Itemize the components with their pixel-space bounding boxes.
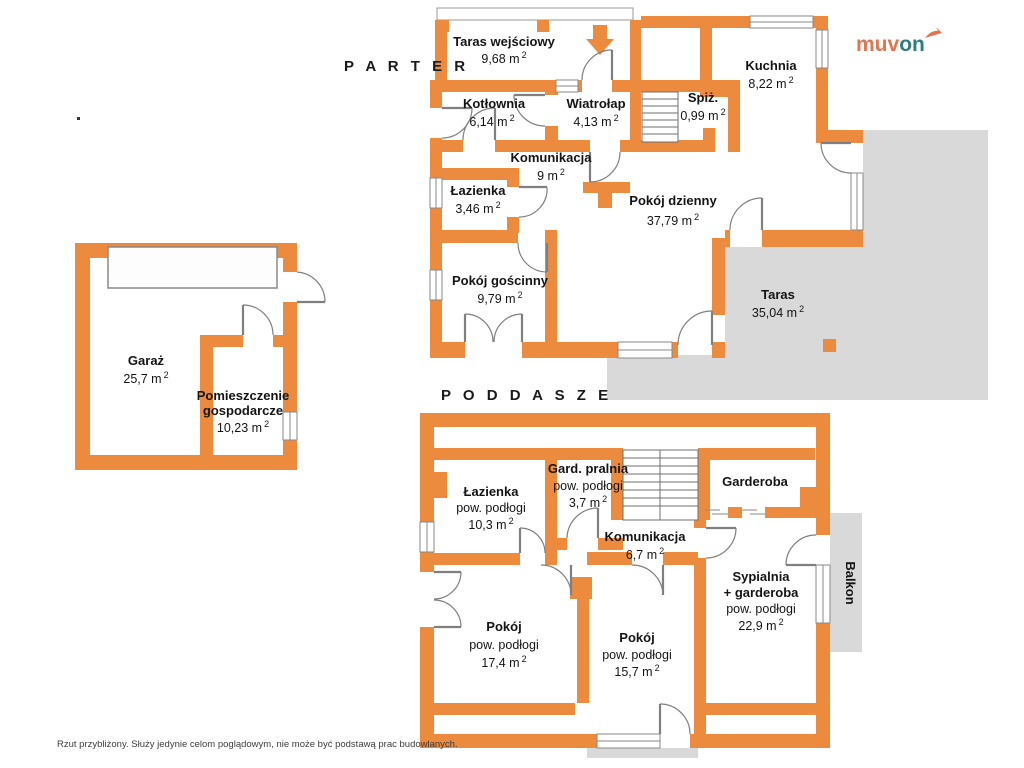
svg-text:Wiatrołap: Wiatrołap	[566, 96, 625, 111]
room-label-sypialnia-garderoba: Sypialnia + garderoba pow. podłogi 22,9 …	[724, 569, 800, 633]
floorplan-page: P A R T E R P O D D A S Z E Taras wejści…	[0, 0, 1024, 768]
svg-text:Balkon: Balkon	[843, 561, 858, 604]
svg-text:pow. podłogi: pow. podłogi	[553, 479, 623, 493]
svg-text:pow. podłogi: pow. podłogi	[456, 501, 526, 515]
svg-text:17,4 m2: 17,4 m2	[481, 654, 526, 670]
svg-text:3,46 m2: 3,46 m2	[455, 200, 500, 216]
svg-text:pow. podłogi: pow. podłogi	[602, 648, 672, 662]
svg-text:Kuchnia: Kuchnia	[745, 58, 797, 73]
floor-label-parter: P A R T E R	[344, 58, 469, 75]
stray-dot	[77, 117, 80, 120]
room-label-pokoj-srodkowy: Pokój pow. podłogi 15,7 m2	[602, 630, 672, 679]
svg-text:+ garderoba: + garderoba	[724, 585, 800, 600]
room-label-pokoj-dzienny: Pokój dzienny 37,79 m2	[629, 193, 717, 228]
parter-terrace-area	[607, 130, 988, 400]
svg-text:10,3 m2: 10,3 m2	[468, 516, 513, 532]
room-label-kuchnia: Kuchnia 8,22 m2	[745, 58, 797, 91]
floor-label-poddasze: P O D D A S Z E	[441, 387, 612, 404]
svg-text:6,7 m2: 6,7 m2	[626, 546, 664, 562]
svg-text:37,79 m2: 37,79 m2	[647, 212, 699, 228]
room-label-lazienka-parter: Łazienka 3,46 m2	[451, 183, 507, 216]
svg-text:15,7 m2: 15,7 m2	[614, 663, 659, 679]
svg-text:4,13 m2: 4,13 m2	[573, 113, 618, 129]
svg-text:Garderoba: Garderoba	[722, 474, 789, 489]
svg-text:Taras: Taras	[761, 287, 795, 302]
svg-text:Komunikacja: Komunikacja	[605, 529, 687, 544]
floorplan-drawing: P A R T E R P O D D A S Z E Taras wejści…	[0, 0, 1024, 768]
svg-text:9,68 m2: 9,68 m2	[481, 50, 526, 66]
svg-text:Spiż.: Spiż.	[688, 90, 718, 105]
svg-text:Sypialnia: Sypialnia	[732, 569, 790, 584]
svg-text:pow. podłogi: pow. podłogi	[726, 602, 796, 616]
room-label-garderoba: Garderoba	[722, 474, 789, 489]
svg-text:22,9 m2: 22,9 m2	[738, 617, 783, 633]
svg-text:Taras wejściowy: Taras wejściowy	[453, 34, 555, 49]
svg-text:Pomieszczenie: Pomieszczenie	[197, 388, 290, 403]
svg-text:6,14 m2: 6,14 m2	[469, 113, 514, 129]
logo-text-on: on	[899, 33, 925, 56]
entry-step	[587, 748, 698, 758]
terrace-pillar	[823, 339, 836, 352]
svg-text:Gard. pralnia: Gard. pralnia	[548, 461, 629, 476]
room-label-komunikacja-parter: Komunikacja 9 m2	[511, 150, 593, 183]
svg-text:3,7 m2: 3,7 m2	[569, 494, 607, 510]
svg-text:pow. podłogi: pow. podłogi	[469, 638, 539, 652]
logo-text-muv: muv	[856, 33, 900, 56]
svg-text:9,79 m2: 9,79 m2	[477, 290, 522, 306]
room-label-pokoj-lewy: Pokój pow. podłogi 17,4 m2	[469, 619, 539, 670]
svg-text:Pokój: Pokój	[619, 630, 654, 645]
svg-text:9 m2: 9 m2	[537, 167, 565, 183]
svg-text:10,23 m2: 10,23 m2	[217, 419, 269, 435]
svg-text:8,22 m2: 8,22 m2	[748, 75, 793, 91]
disclaimer-text: Rzut przybliżony. Służy jedynie celom po…	[57, 739, 458, 750]
svg-text:0,99 m2: 0,99 m2	[680, 107, 725, 123]
room-label-balkon: Balkon	[843, 561, 858, 604]
svg-text:35,04 m2: 35,04 m2	[752, 304, 804, 320]
svg-text:Kotłownia: Kotłownia	[463, 96, 526, 111]
svg-text:Łazienka: Łazienka	[451, 183, 507, 198]
muvon-logo: muvon	[856, 27, 942, 56]
parter-stairs	[642, 92, 678, 142]
logo-arrow-icon	[925, 27, 942, 38]
svg-text:gospodarcze: gospodarcze	[203, 403, 283, 418]
poddasze-stairs	[623, 450, 698, 520]
room-label-garaz: Garaż 25,7 m2	[123, 353, 168, 386]
room-label-wiatrolap: Wiatrołap 4,13 m2	[566, 96, 625, 129]
svg-text:Pokój: Pokój	[486, 619, 521, 634]
svg-text:muvon: muvon	[856, 33, 925, 56]
svg-text:Pokój dzienny: Pokój dzienny	[629, 193, 717, 208]
entrance-canopy	[437, 8, 633, 20]
svg-text:25,7 m2: 25,7 m2	[123, 370, 168, 386]
svg-text:Pokój gościnny: Pokój gościnny	[452, 273, 549, 288]
svg-text:Komunikacja: Komunikacja	[511, 150, 593, 165]
svg-text:Łazienka: Łazienka	[464, 484, 520, 499]
garage-gate	[108, 247, 277, 288]
room-label-lazienka-poddasze: Łazienka pow. podłogi 10,3 m2	[456, 484, 526, 532]
room-label-pokoj-goscinny: Pokój gościnny 9,79 m2	[452, 273, 549, 306]
svg-text:Garaż: Garaż	[128, 353, 165, 368]
